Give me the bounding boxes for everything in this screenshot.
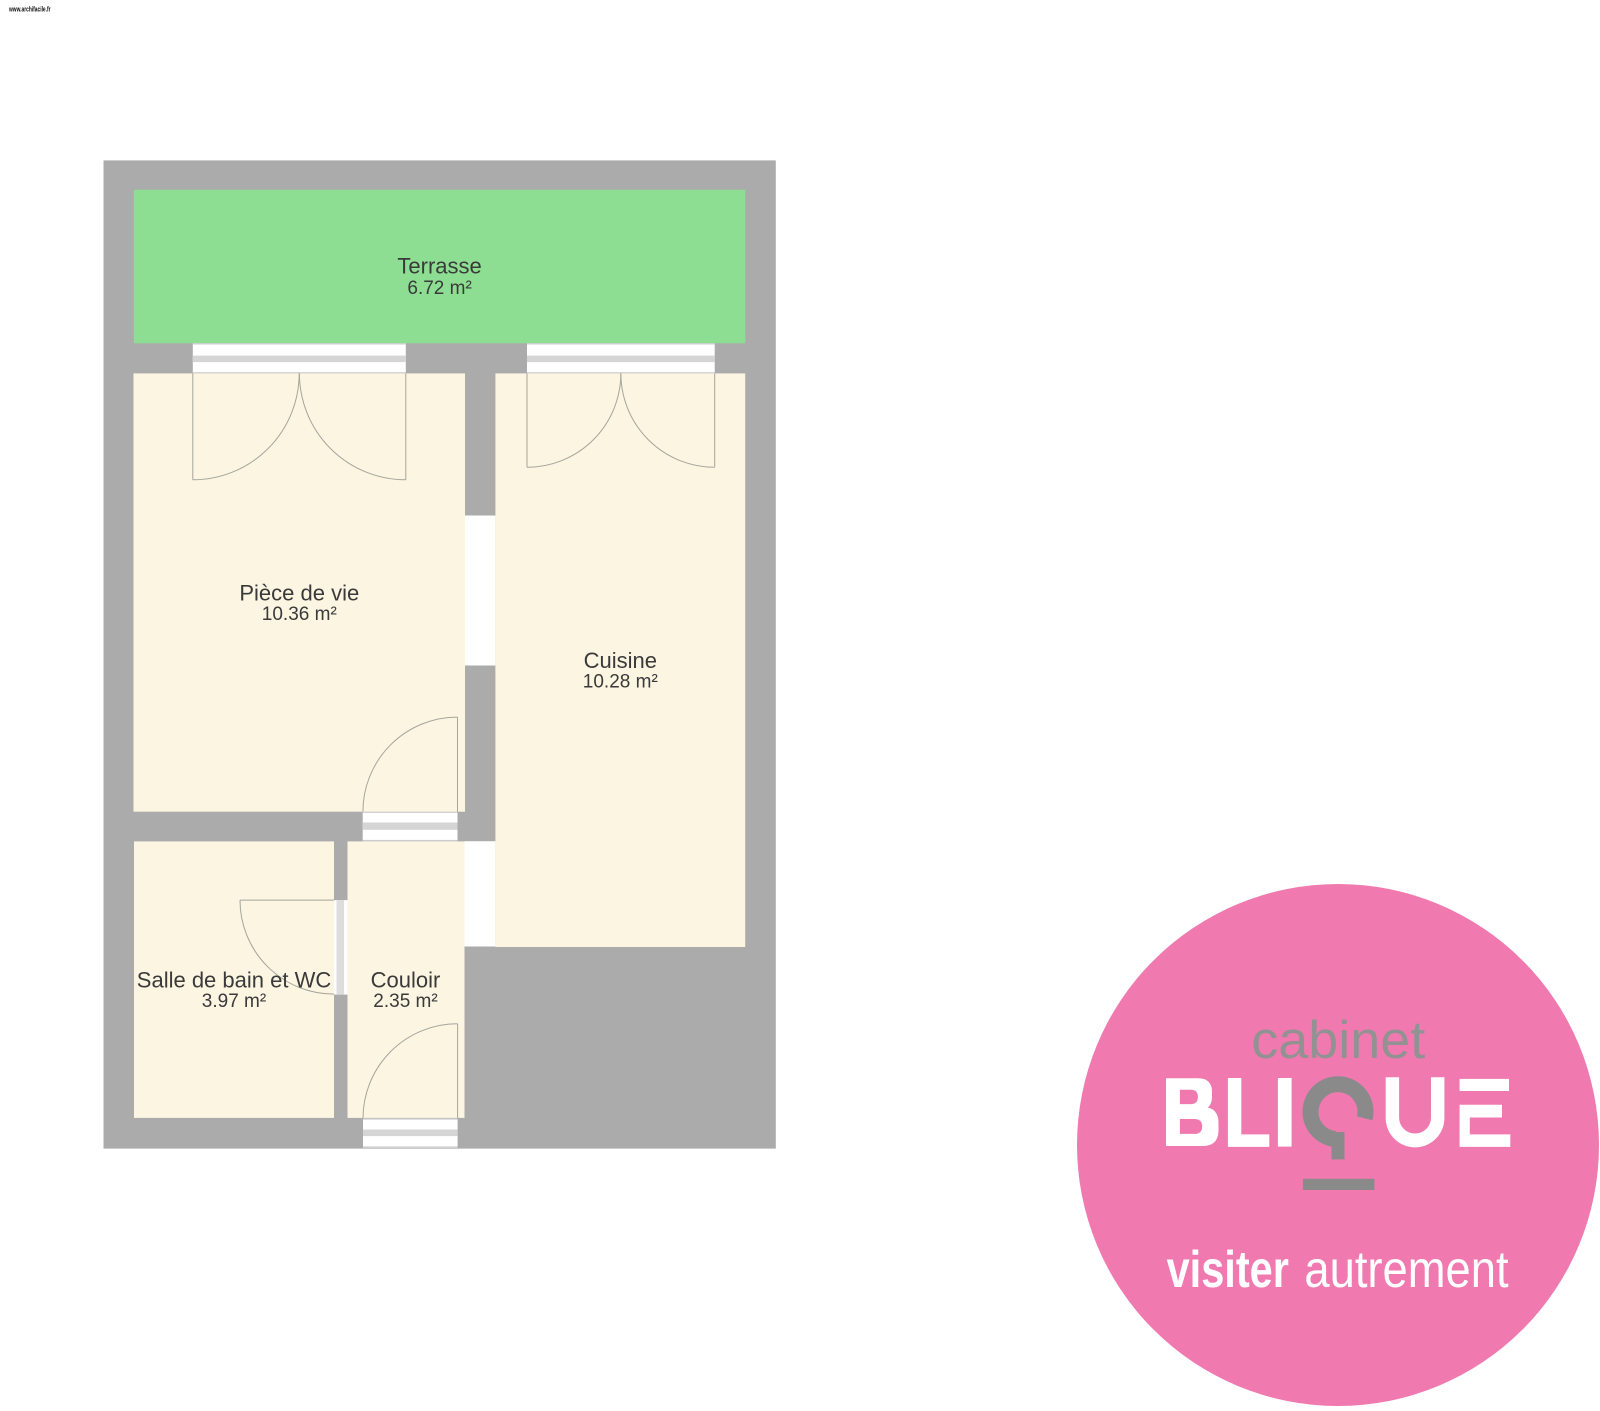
svg-text:cabinet: cabinet — [1251, 1011, 1425, 1070]
svg-text:6.72 m²: 6.72 m² — [407, 278, 471, 299]
svg-text:Cuisine: Cuisine — [584, 648, 657, 673]
svg-text:autrement: autrement — [1304, 1241, 1509, 1299]
svg-text:2.35 m²: 2.35 m² — [373, 991, 437, 1012]
svg-text:www.archifacile.fr: www.archifacile.fr — [8, 7, 50, 14]
svg-text:3.97 m²: 3.97 m² — [202, 991, 266, 1012]
svg-text:Salle de bain et WC: Salle de bain et WC — [137, 967, 332, 992]
svg-text:10.36 m²: 10.36 m² — [262, 604, 337, 625]
svg-text:Couloir: Couloir — [371, 967, 441, 992]
svg-text:Pièce de vie: Pièce de vie — [239, 580, 359, 605]
svg-text:visiter: visiter — [1167, 1241, 1289, 1299]
svg-text:10.28 m²: 10.28 m² — [583, 672, 658, 693]
svg-text:Terrasse: Terrasse — [397, 254, 481, 279]
